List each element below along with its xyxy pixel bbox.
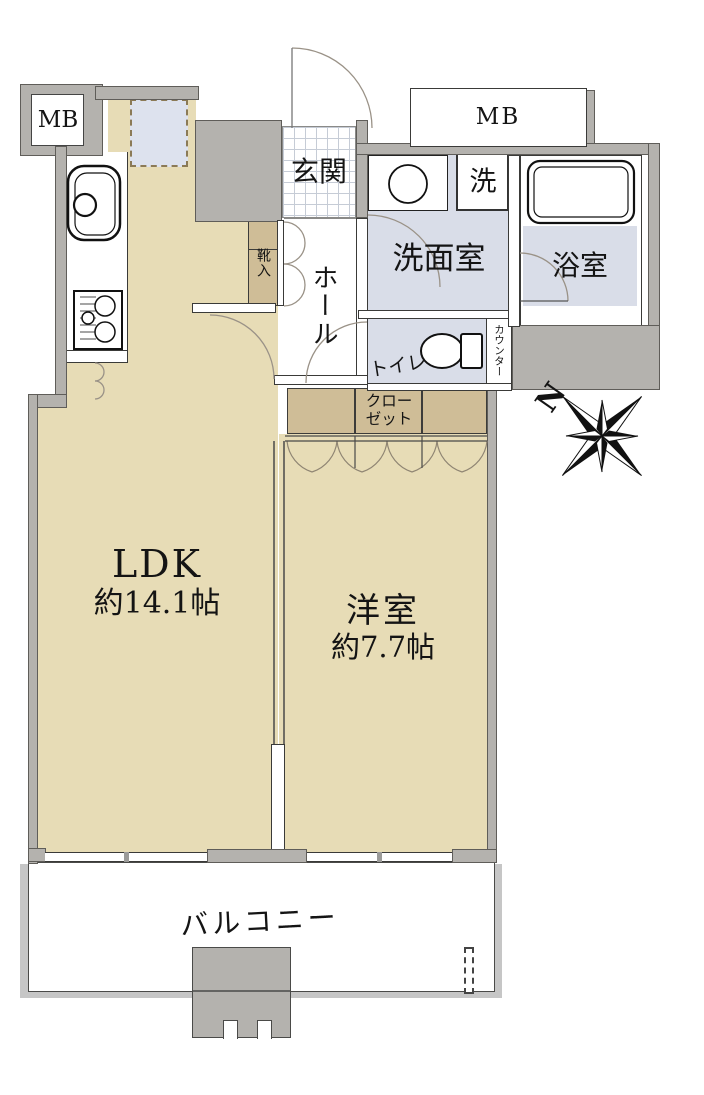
window-mullion (377, 852, 382, 862)
shoe-cabinet-label: 靴入 (255, 248, 271, 278)
pillar-notch (223, 1020, 238, 1039)
bathroom-label: 浴室 (552, 250, 608, 282)
ldk-upper-floor (196, 314, 278, 408)
vanity-unit (368, 155, 448, 211)
closet-divider (421, 389, 423, 433)
wall-segment (512, 325, 660, 390)
closet-divider (354, 389, 356, 433)
bedroom-size: 約7.7帖 (331, 631, 435, 664)
pillar-notch (257, 1020, 272, 1039)
wall-segment (28, 394, 38, 864)
balcony-pillar (192, 947, 291, 1038)
wall-segment (95, 86, 199, 100)
mb-left-label: MB (38, 107, 78, 133)
entrance-label: 玄関 (291, 156, 347, 188)
ldk-main-floor (38, 408, 278, 852)
wall-segment (356, 218, 368, 385)
kitchen-counter (67, 152, 128, 352)
washer-label: 洗 (470, 166, 497, 197)
closet-label: クローゼット (361, 393, 417, 429)
wall-segment (358, 310, 512, 319)
hall-label: ホール (307, 264, 337, 348)
wall-segment (28, 848, 46, 862)
counter-label: カウンター (493, 324, 505, 377)
wall-segment (55, 146, 67, 402)
bedroom-name: 洋室 (331, 592, 435, 631)
wall-segment (367, 383, 512, 391)
washroom-label: 洗面室 (393, 242, 486, 278)
wall-segment (207, 849, 307, 863)
refrigerator-space (130, 99, 188, 167)
mb-right-label: MB (476, 104, 520, 130)
hall-door-leaf (192, 303, 276, 313)
wall-segment (356, 120, 368, 218)
bathroom-enclosure (520, 155, 642, 329)
wall-segment (648, 143, 660, 335)
wall-segment (487, 388, 497, 862)
floor-plan: MB MB 玄関 洗 洗面室 浴室 トイレ カウンター ホール 靴入 クローゼッ… (0, 0, 704, 1095)
ldk-name: LDK (94, 543, 221, 587)
wall-segment (271, 744, 285, 852)
wall-segment (274, 375, 368, 385)
window-mullion (124, 852, 129, 862)
kitchen-counter-end (60, 350, 128, 363)
wall-segment (195, 120, 282, 222)
balcony-partition (464, 947, 474, 994)
wall-segment (508, 155, 520, 327)
wall-segment (452, 849, 497, 863)
ldk-below-counter-floor (67, 363, 196, 408)
wall-segment (277, 220, 284, 306)
ldk-size: 約14.1帖 (94, 587, 221, 622)
entrance-door-arc (292, 48, 372, 128)
ldk-label: LDK 約14.1帖 (94, 543, 221, 621)
bedroom-label: 洋室 約7.7帖 (331, 592, 435, 664)
